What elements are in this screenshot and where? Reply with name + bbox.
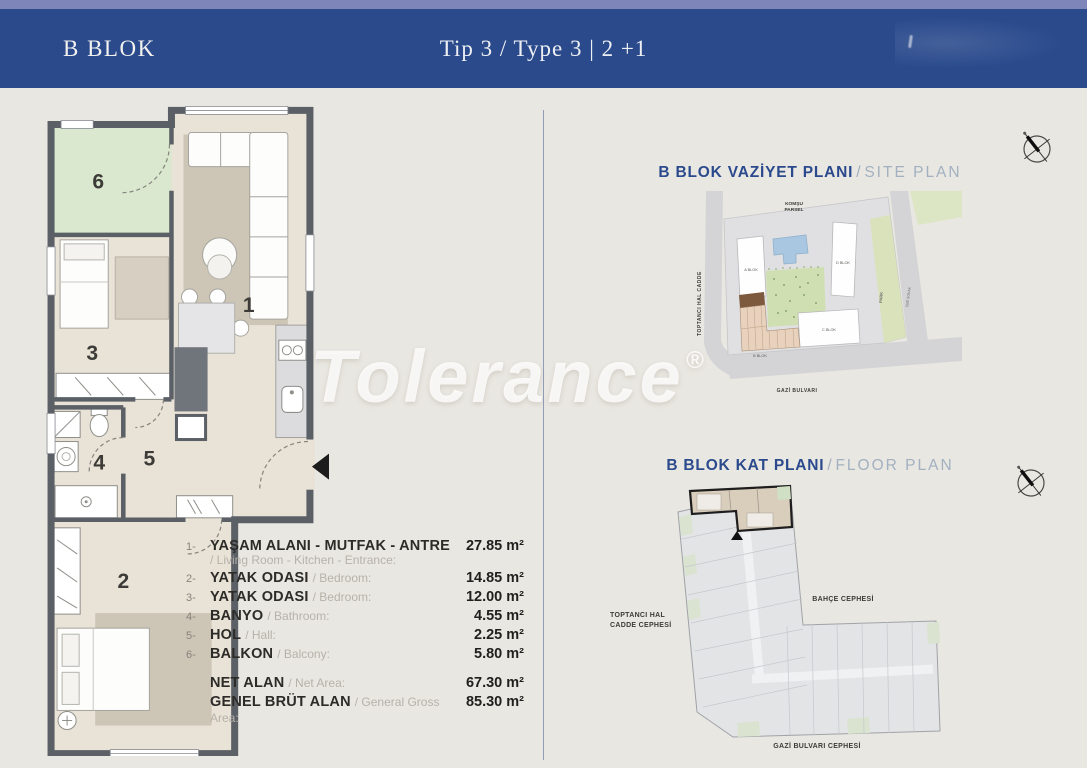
brochure-page: B BLOK Tip 3 / Type 3 | 2 +1 [0,0,1087,768]
legend-row: 1- YAŞAM ALANI - MUTFAK - ANTRE / Living… [186,538,524,567]
cabinet-box [176,415,205,439]
row-area-value: 12.00 m² [458,589,524,605]
stove-icon [279,340,306,360]
legend-row: 3- YATAK ODASI/ Bedroom: 12.00 m² [186,589,524,605]
block-d-label: D BLOK [836,261,850,265]
legend-row: 4- BANYO/ Bathroom: 4.55 m² [186,608,524,624]
row-number: 6- [186,646,210,661]
komsu-parsel-label-1: KOMŞU [785,201,803,207]
top-accent-strip [0,0,1087,9]
row-number: 5- [186,627,210,642]
header-bar: B BLOK Tip 3 / Type 3 | 2 +1 [0,9,1087,88]
total-label-tr: GENEL BRÜT ALAN [210,694,351,710]
row-label-tr: YAŞAM ALANI - MUTFAK - ANTRE [210,538,450,554]
row-label-en: / Bedroom: [313,590,372,604]
facade-left-label-1: TOPTANCI HAL [610,612,665,619]
entrance-opening [305,440,315,490]
shoe-cabinet-icon [176,496,232,518]
floor-lamp-icon [58,711,76,729]
compass-icon [1014,122,1060,176]
site-plan-map: KOMŞU PARSEL TOPTANCI HAL CADDE GAZİ BUL… [638,190,962,398]
balcony-floor [51,124,171,234]
wardrobe-icon-bedroom3 [56,373,170,399]
gross-area-row: GENEL BRÜT ALAN/ General Gross Area: 85.… [186,694,524,726]
wardrobe-icon-bedroom2 [54,528,80,614]
block-c-label: C BLOK [822,328,836,332]
bath-sink-icon [54,411,80,437]
single-bed-icon [60,240,108,328]
block-b-label: B BLOK [753,354,767,358]
watermark-text: Tolerance [310,335,684,418]
room-label-3: 3 [86,342,98,365]
row-label-en: / Living Room - Kitchen - Entrance: [210,554,458,567]
row-label-tr: YATAK ODASI [210,570,309,586]
site-plan-title: B BLOK VAZİYET PLANI/SITE PLAN [630,164,990,182]
double-bed-icon [57,628,149,710]
row-label-tr: BALKON [210,646,273,662]
row-label-en: / Balcony: [277,647,330,661]
logo-ghost [895,17,1065,69]
row-number: 2- [186,570,210,585]
row-number: 1- [186,538,210,553]
net-area-row: NET ALAN/ Net Area: 67.30 m² [186,675,524,691]
key-title-tr: B BLOK KAT PLANI [666,457,824,474]
room-label-1: 1 [243,294,255,317]
total-label-en: / Net Area: [288,676,345,690]
room-label-4: 4 [93,452,105,475]
building-d [831,222,857,297]
row-label-tr: YATAK ODASI [210,589,309,605]
key-title-en: FLOOR PLAN [835,457,953,474]
green-area [910,191,962,225]
legend-totals: NET ALAN/ Net Area: 67.30 m² GENEL BRÜT … [186,675,524,726]
total-area-value: 67.30 m² [458,675,524,691]
room-label-6: 6 [92,171,104,194]
row-area-value: 4.55 m² [466,608,524,624]
site-title-tr: B BLOK VAZİYET PLANI [658,164,853,181]
cabinet-block [174,347,207,411]
row-label-tr: HOL [210,627,241,643]
street-left-label: TOPTANCI HAL CADDE [697,271,703,336]
shower-icon [55,486,117,518]
legend-row: 5- HOL/ Hall: 2.25 m² [186,627,524,643]
floor-plan-title: B BLOK KAT PLANI/FLOOR PLAN [630,457,990,475]
building-outline [678,486,940,737]
row-label-en: / Bathroom: [267,609,329,623]
komsu-parsel-label-2: PARSEL [784,207,803,213]
area-legend: 1- YAŞAM ALANI - MUTFAK - ANTRE / Living… [186,538,524,727]
row-number: 4- [186,608,210,623]
legend-row: 2- YATAK ODASI/ Bedroom: 14.85 m² [186,570,524,586]
compass-icon [1008,456,1054,510]
total-label-tr: NET ALAN [210,675,284,691]
room-label-5: 5 [144,448,156,471]
park-label: PARK [878,292,884,303]
row-number: 3- [186,589,210,604]
row-area-value: 14.85 m² [458,570,524,586]
row-area-value: 2.25 m² [466,627,524,643]
kitchen-counter-icon [276,325,309,437]
street-bottom-label: GAZİ BULVARI [777,387,818,394]
vertical-divider [543,110,544,760]
desk-icon [115,257,168,319]
kitchen-sink-icon [282,386,303,412]
row-label-en: / Bedroom: [313,571,372,585]
key-floor-plan: TOPTANCI HAL CADDE CEPHESİ BAHÇE CEPHESİ… [597,476,995,760]
block-a-label: A BLOK [744,268,758,272]
row-area-value: 5.80 m² [466,646,524,662]
facade-right-label: BAHÇE CEPHESİ [812,595,873,603]
legend-row: 6- BALKON/ Balcony: 5.80 m² [186,646,524,662]
site-title-en: SITE PLAN [864,164,961,181]
row-label-en: / Hall: [245,628,276,642]
room-label-2: 2 [117,570,129,593]
facade-bottom-label: GAZİ BULVARI CEPHESİ [773,742,860,750]
toilet-icon [90,407,108,436]
row-label-tr: BANYO [210,608,263,624]
total-area-value: 85.30 m² [458,694,524,710]
facade-left-label-2: CADDE CEPHESİ [610,621,671,629]
row-area-value: 27.85 m² [458,538,524,554]
washer-icon [54,442,78,472]
